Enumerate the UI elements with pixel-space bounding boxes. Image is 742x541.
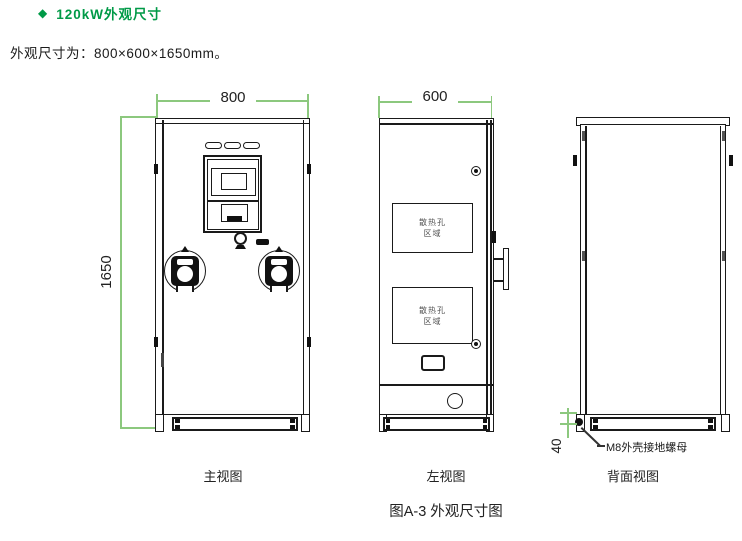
heat-vent-label-line1: 散热孔 (419, 305, 446, 316)
back-base-foot (593, 425, 598, 429)
front-hinge-mark (154, 164, 158, 174)
front-base-leg-right (301, 414, 310, 432)
indicator-lamp-icon (234, 232, 247, 245)
back-edge-mark (582, 251, 585, 261)
ground-dim-tick (560, 412, 577, 414)
front-cabinet-inner-line-right (303, 120, 305, 415)
back-base-leg-right (721, 414, 730, 432)
back-edge-mark (582, 131, 585, 141)
back-base-plinth (590, 417, 716, 431)
front-width-dim-tick-right (307, 94, 309, 118)
left-base-plinth (383, 417, 490, 431)
hmi-module (203, 155, 262, 233)
front-base-foot (175, 419, 180, 423)
front-cabinet-lid-line (156, 123, 309, 125)
left-base-foot (386, 425, 390, 429)
gun-socket-a-slot (177, 259, 193, 265)
holster-side-profile-arm (493, 280, 504, 282)
left-width-dim-tick-right (491, 96, 493, 118)
back-inner-line-left (585, 126, 587, 415)
holster-side-profile-arm (493, 258, 504, 260)
front-hinge-mark (154, 337, 158, 347)
back-base-foot (708, 425, 713, 429)
left-base-foot (483, 425, 487, 429)
gun-socket-a-hole (177, 266, 193, 282)
vent-slot-icon (205, 142, 222, 149)
gun-direction-arrow-icon (181, 246, 189, 252)
door-lock-top-pin (474, 169, 478, 173)
front-base-foot (290, 425, 295, 429)
ground-nut-label: M8外壳接地螺母 (606, 439, 687, 455)
left-base-foot (386, 419, 390, 423)
heat-vent-label-line2: 区域 (424, 228, 442, 239)
front-base-foot (290, 419, 295, 423)
heat-vent-area-lower: 散热孔 区域 (392, 287, 473, 344)
vent-slot-icon (224, 142, 241, 149)
front-height-dim-line (120, 116, 122, 429)
door-lock-bottom-pin (474, 342, 478, 346)
front-edge-mark (161, 353, 164, 367)
section-title: ◆ 120kW外观尺寸 (38, 3, 162, 23)
figure-caption: 图A-3 外观尺寸图 (360, 504, 532, 520)
vent-slot-icon (243, 142, 260, 149)
diamond-bullet-icon: ◆ (38, 6, 47, 20)
ground-dim-tick (560, 423, 577, 425)
front-base-plinth (172, 417, 298, 431)
left-band-line (380, 384, 493, 386)
heat-vent-area-upper: 散热孔 区域 (392, 203, 473, 253)
ground-nut-leader-dash (597, 445, 605, 447)
section-title-text: 120kW外观尺寸 (56, 3, 162, 23)
left-hinge-mark (492, 231, 496, 243)
dimension-summary-text: 外观尺寸为：800×600×1650mm。 (10, 42, 228, 62)
front-height-dim-label: 1650 (99, 250, 115, 294)
front-width-dim-label: 800 (210, 90, 256, 106)
front-height-dim-tick-bottom (121, 427, 155, 429)
front-width-dim-tick-left (156, 94, 158, 118)
left-view-caption: 左视图 (417, 469, 475, 485)
back-hinge-mark (729, 155, 733, 166)
back-edge-mark (722, 251, 725, 261)
left-access-port (421, 355, 445, 371)
heat-vent-label-line2: 区域 (424, 316, 442, 327)
display-screen (221, 173, 247, 190)
module-divider-line (207, 200, 258, 202)
heat-vent-label-line1: 散热孔 (419, 217, 446, 228)
front-hinge-mark (307, 164, 311, 174)
back-base-foot (708, 419, 713, 423)
back-cabinet-body (580, 124, 726, 415)
gun-direction-arrow-icon (275, 246, 283, 252)
card-reader-opening (227, 216, 242, 221)
front-base-leg-left (155, 414, 164, 432)
cable-entry-hole (447, 393, 463, 409)
left-width-dim-tick-left (378, 96, 380, 118)
left-cabinet-lid-line (380, 123, 494, 125)
back-inner-line-right (720, 126, 722, 415)
front-view-caption: 主视图 (194, 469, 252, 485)
holster-side-profile-bar (503, 248, 509, 290)
left-front-edge-line (490, 120, 492, 414)
front-hinge-mark (307, 337, 311, 347)
back-hinge-mark (573, 155, 577, 166)
left-base-foot (483, 419, 487, 423)
gun-socket-b-slot (271, 259, 287, 265)
front-height-dim-tick-top (121, 116, 156, 118)
left-front-edge-line (486, 120, 488, 414)
stop-button-icon (256, 239, 269, 245)
ground-dim-label: 40 (549, 434, 565, 458)
ground-nut-icon (575, 418, 583, 426)
left-width-dim-label: 600 (412, 89, 458, 105)
front-base-foot (175, 425, 180, 429)
page: ◆ 120kW外观尺寸 外观尺寸为：800×600×1650mm。 800 16… (0, 0, 742, 541)
gun-socket-b-hole (271, 266, 287, 282)
back-edge-mark (722, 131, 725, 141)
back-view-caption: 背面视图 (596, 469, 670, 485)
back-base-foot (593, 419, 598, 423)
